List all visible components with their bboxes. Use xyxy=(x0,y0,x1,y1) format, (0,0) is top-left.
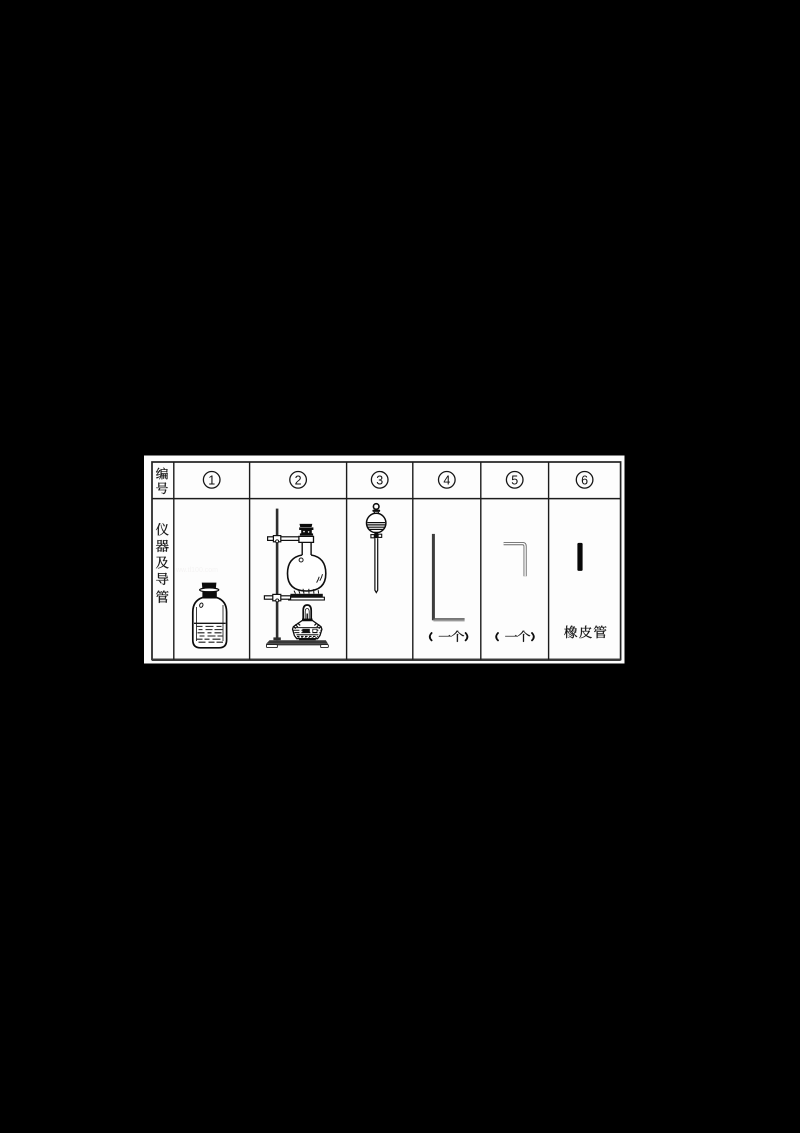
svg-text:2: 2 xyxy=(295,473,302,487)
svg-text:1: 1 xyxy=(208,473,215,487)
svg-text:5: 5 xyxy=(511,473,518,487)
svg-text:ww.tl100.com: ww.tl100.com xyxy=(175,567,218,574)
svg-text:3: 3 xyxy=(376,473,383,487)
svg-text:6: 6 xyxy=(581,473,588,487)
svg-text:4: 4 xyxy=(443,473,450,487)
